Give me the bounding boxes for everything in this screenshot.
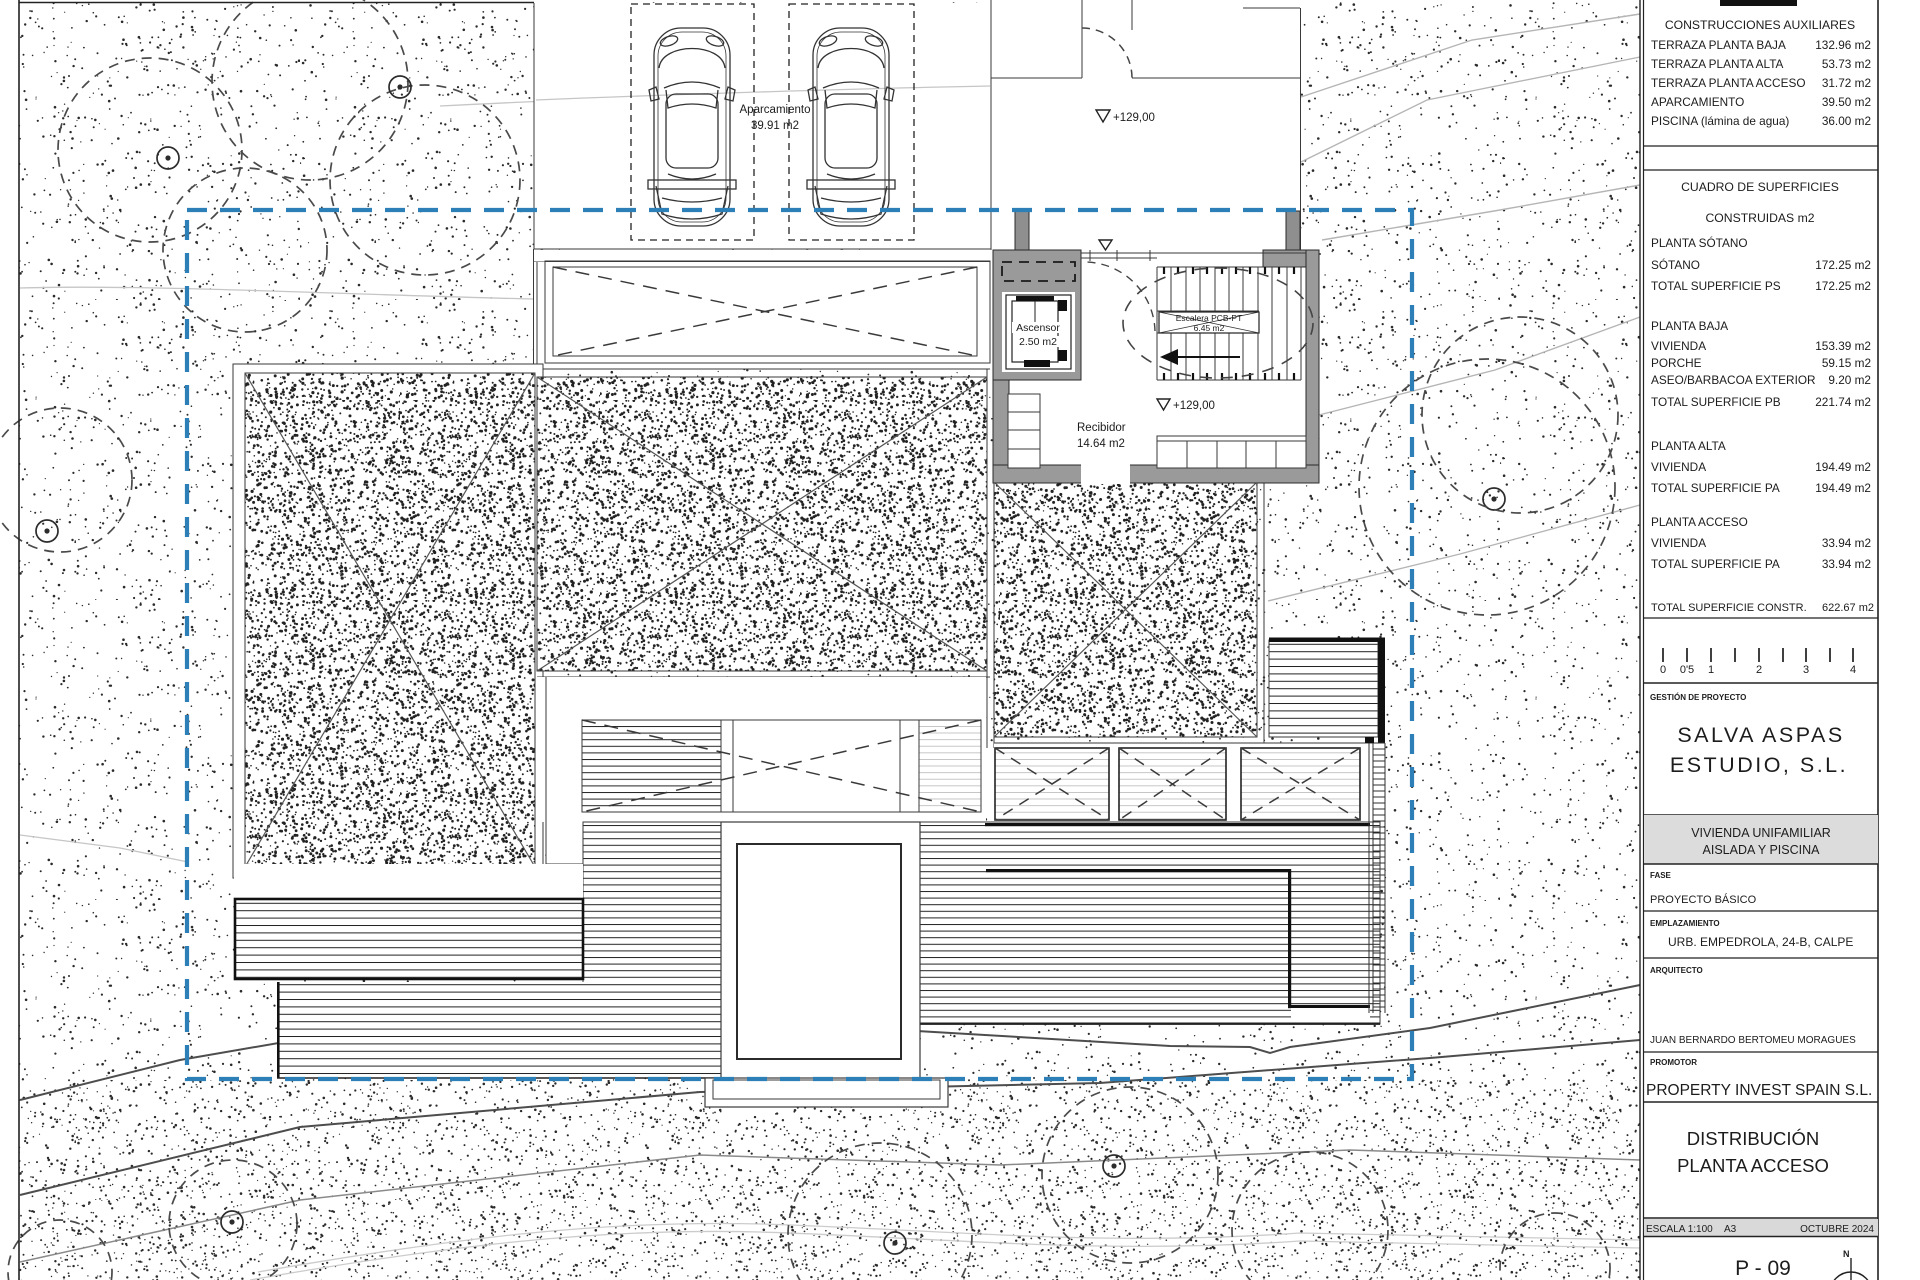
- svg-text:TOTAL SUPERFICIE PA: TOTAL SUPERFICIE PA: [1651, 481, 1780, 495]
- svg-text:2: 2: [1756, 664, 1762, 676]
- svg-text:TOTAL SUPERFICIE PA: TOTAL SUPERFICIE PA: [1651, 557, 1780, 571]
- svg-text:172.25 m2: 172.25 m2: [1815, 258, 1871, 272]
- svg-text:Recibidor: Recibidor: [1077, 422, 1126, 434]
- svg-text:0: 0: [1660, 664, 1666, 676]
- svg-text:TOTAL SUPERFICIE PB: TOTAL SUPERFICIE PB: [1651, 395, 1781, 409]
- svg-text:194.49 m2: 194.49 m2: [1815, 481, 1871, 495]
- svg-text:1: 1: [1708, 664, 1714, 676]
- svg-text:N: N: [1843, 1249, 1850, 1259]
- svg-text:URB. EMPEDROLA, 24-B, CALPE: URB. EMPEDROLA, 24-B, CALPE: [1668, 935, 1853, 949]
- svg-text:PLANTA ALTA: PLANTA ALTA: [1651, 439, 1726, 453]
- svg-text:ESCALA 1:100: ESCALA 1:100: [1646, 1224, 1713, 1235]
- svg-text:53.73 m2: 53.73 m2: [1822, 57, 1871, 71]
- svg-text:PROMOTOR: PROMOTOR: [1650, 1058, 1697, 1067]
- svg-text:3: 3: [1803, 664, 1809, 676]
- svg-text:153.39 m2: 153.39 m2: [1815, 339, 1871, 353]
- svg-text:GESTIÓN DE PROYECTO: GESTIÓN DE PROYECTO: [1650, 693, 1746, 702]
- svg-text:PROYECTO BÁSICO: PROYECTO BÁSICO: [1650, 893, 1757, 906]
- svg-text:31.72 m2: 31.72 m2: [1822, 76, 1871, 90]
- svg-text:ESTUDIO, S.L.: ESTUDIO, S.L.: [1670, 753, 1848, 777]
- svg-text:PLANTA BAJA: PLANTA BAJA: [1651, 319, 1728, 333]
- svg-text:TOTAL SUPERFICIE CONSTR.: TOTAL SUPERFICIE CONSTR.: [1651, 602, 1807, 614]
- svg-text:132.96 m2: 132.96 m2: [1815, 38, 1871, 52]
- svg-text:TERRAZA PLANTA ACCESO: TERRAZA PLANTA ACCESO: [1651, 76, 1806, 90]
- svg-text:Escalera PCB-PT: Escalera PCB-PT: [1176, 313, 1243, 323]
- svg-text:6.45 m2: 6.45 m2: [1194, 323, 1225, 333]
- svg-text:39.50 m2: 39.50 m2: [1822, 95, 1871, 109]
- svg-text:ASEO/BARBACOA EXTERIOR: ASEO/BARBACOA EXTERIOR: [1651, 373, 1816, 387]
- svg-text:39.91 m2: 39.91 m2: [751, 120, 799, 132]
- svg-text:FASE: FASE: [1650, 871, 1672, 880]
- svg-text:ARQUITECTO: ARQUITECTO: [1650, 966, 1703, 975]
- svg-text:PLANTA ACCESO: PLANTA ACCESO: [1651, 515, 1748, 529]
- svg-text:A3: A3: [1724, 1224, 1737, 1235]
- svg-text:221.74 m2: 221.74 m2: [1815, 395, 1871, 409]
- svg-text:DISTRIBUCIÓN: DISTRIBUCIÓN: [1687, 1128, 1820, 1149]
- svg-text:PROPERTY INVEST SPAIN S.L.: PROPERTY INVEST SPAIN S.L.: [1646, 1082, 1872, 1099]
- svg-text:4: 4: [1850, 664, 1856, 676]
- svg-text:TOTAL SUPERFICIE PS: TOTAL SUPERFICIE PS: [1651, 279, 1781, 293]
- svg-text:36.00 m2: 36.00 m2: [1822, 114, 1871, 128]
- svg-text:0'5: 0'5: [1680, 664, 1694, 676]
- svg-text:VIVIENDA UNIFAMILIAR: VIVIENDA UNIFAMILIAR: [1691, 826, 1831, 840]
- svg-text:CUADRO DE SUPERFICIES: CUADRO DE SUPERFICIES: [1681, 180, 1839, 194]
- svg-text:172.25 m2: 172.25 m2: [1815, 279, 1871, 293]
- svg-text:CONSTRUCCIONES AUXILIARES: CONSTRUCCIONES AUXILIARES: [1665, 18, 1855, 32]
- svg-text:SALVA ASPAS: SALVA ASPAS: [1677, 723, 1844, 747]
- svg-text:33.94 m2: 33.94 m2: [1822, 536, 1871, 550]
- svg-text:P - 09: P - 09: [1735, 1257, 1791, 1280]
- svg-text:PLANTA SÓTANO: PLANTA SÓTANO: [1651, 236, 1748, 250]
- svg-text:SÓTANO: SÓTANO: [1651, 258, 1700, 272]
- svg-text:VIVIENDA: VIVIENDA: [1651, 339, 1706, 353]
- svg-text:APARCAMIENTO: APARCAMIENTO: [1651, 95, 1744, 109]
- svg-text:EMPLAZAMIENTO: EMPLAZAMIENTO: [1650, 919, 1720, 928]
- svg-text:+129,00: +129,00: [1173, 400, 1215, 412]
- svg-text:JUAN BERNARDO BERTOMEU MORAGUE: JUAN BERNARDO BERTOMEU MORAGUES: [1650, 1035, 1856, 1046]
- svg-text:+129,00: +129,00: [1113, 112, 1155, 124]
- svg-text:59.15 m2: 59.15 m2: [1822, 356, 1871, 370]
- svg-text:Ascensor: Ascensor: [1016, 322, 1060, 334]
- svg-text:OCTUBRE 2024: OCTUBRE 2024: [1800, 1224, 1874, 1235]
- svg-text:VIVIENDA: VIVIENDA: [1651, 460, 1706, 474]
- svg-text:194.49 m2: 194.49 m2: [1815, 460, 1871, 474]
- svg-text:PORCHE: PORCHE: [1651, 356, 1702, 370]
- svg-text:2.50 m2: 2.50 m2: [1019, 336, 1057, 348]
- svg-text:33.94 m2: 33.94 m2: [1822, 557, 1871, 571]
- svg-text:CONSTRUIDAS m2: CONSTRUIDAS m2: [1705, 211, 1814, 225]
- svg-text:VIVIENDA: VIVIENDA: [1651, 536, 1706, 550]
- svg-text:Aparcamiento: Aparcamiento: [740, 104, 811, 116]
- svg-text:AISLADA Y PISCINA: AISLADA Y PISCINA: [1703, 843, 1821, 857]
- svg-text:PLANTA ACCESO: PLANTA ACCESO: [1677, 1155, 1829, 1176]
- svg-text:622.67 m2: 622.67 m2: [1822, 602, 1874, 614]
- svg-text:9.20 m2: 9.20 m2: [1828, 373, 1871, 387]
- svg-text:14.64 m2: 14.64 m2: [1077, 438, 1125, 450]
- svg-text:TERRAZA PLANTA ALTA: TERRAZA PLANTA ALTA: [1651, 57, 1784, 71]
- svg-text:TERRAZA PLANTA BAJA: TERRAZA PLANTA BAJA: [1651, 38, 1786, 52]
- svg-text:PISCINA (lámina de agua): PISCINA (lámina de agua): [1651, 114, 1789, 128]
